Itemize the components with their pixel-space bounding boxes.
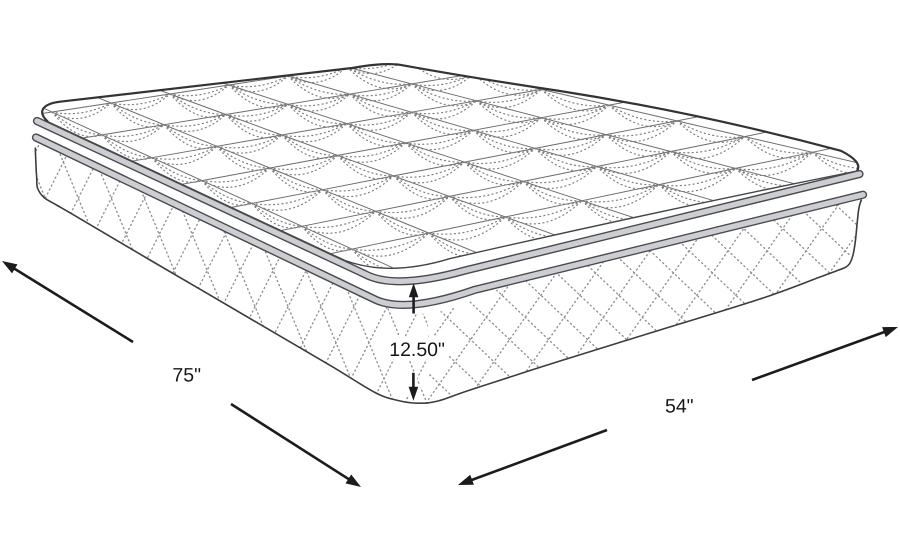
svg-text:54": 54" (665, 395, 694, 417)
svg-text:75": 75" (172, 365, 201, 387)
svg-text:12.50": 12.50" (389, 339, 445, 361)
